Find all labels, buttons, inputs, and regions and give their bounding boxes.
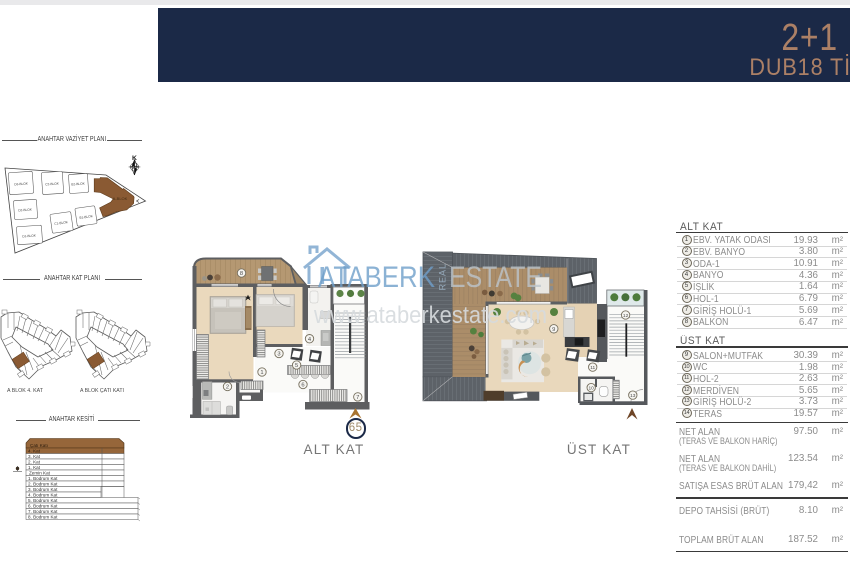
- svg-text:1. Kat: 1. Kat: [28, 465, 41, 470]
- svg-text:6. Bodrum Kat: 6. Bodrum Kat: [28, 504, 58, 509]
- svg-text:2. Bodrum Kat: 2. Bodrum Kat: [28, 482, 58, 487]
- svg-text:10: 10: [589, 386, 595, 392]
- svg-text:11: 11: [590, 365, 595, 371]
- svg-text:6: 6: [301, 383, 304, 389]
- svg-text:Zemin Kat: Zemin Kat: [29, 471, 51, 476]
- svg-text:5: 5: [295, 363, 298, 369]
- svg-text:5. Bodrum Kat: 5. Bodrum Kat: [28, 498, 58, 503]
- svg-text:7. Bodrum Kat: 7. Bodrum Kat: [28, 509, 58, 514]
- svg-text:4. Kat: 4. Kat: [28, 449, 41, 454]
- svg-text:A BLOK ÇATI KATI: A BLOK ÇATI KATI: [80, 388, 124, 394]
- svg-text:13: 13: [630, 393, 636, 399]
- svg-text:4. Bodrum Kat: 4. Bodrum Kat: [28, 493, 58, 498]
- svg-text:www.ataberkestate.com: www.ataberkestate.com: [313, 302, 547, 329]
- svg-text:8. Bodrum Kat: 8. Bodrum Kat: [28, 515, 58, 520]
- svg-text:2: 2: [226, 385, 229, 391]
- svg-text:3: 3: [277, 352, 280, 358]
- svg-text:A-BLOK: A-BLOK: [113, 196, 128, 201]
- svg-text:12: 12: [623, 313, 629, 319]
- svg-text:3. Kat: 3. Kat: [28, 454, 41, 459]
- svg-text:Çatı Katı: Çatı Katı: [30, 443, 48, 448]
- svg-text:1: 1: [260, 370, 263, 376]
- svg-text:ESTATE: ESTATE: [449, 261, 542, 294]
- svg-text:A BLOK 4. KAT: A BLOK 4. KAT: [7, 388, 43, 394]
- svg-text:7: 7: [356, 395, 359, 401]
- svg-text:ATABERK: ATABERK: [318, 261, 435, 294]
- svg-text:REAL: REAL: [438, 263, 448, 291]
- svg-text:8: 8: [240, 271, 243, 277]
- svg-text:1. Bodrum Kat: 1. Bodrum Kat: [28, 476, 58, 481]
- svg-text:3. Bodrum Kat: 3. Bodrum Kat: [28, 487, 58, 492]
- svg-text:2. Kat: 2. Kat: [28, 460, 41, 465]
